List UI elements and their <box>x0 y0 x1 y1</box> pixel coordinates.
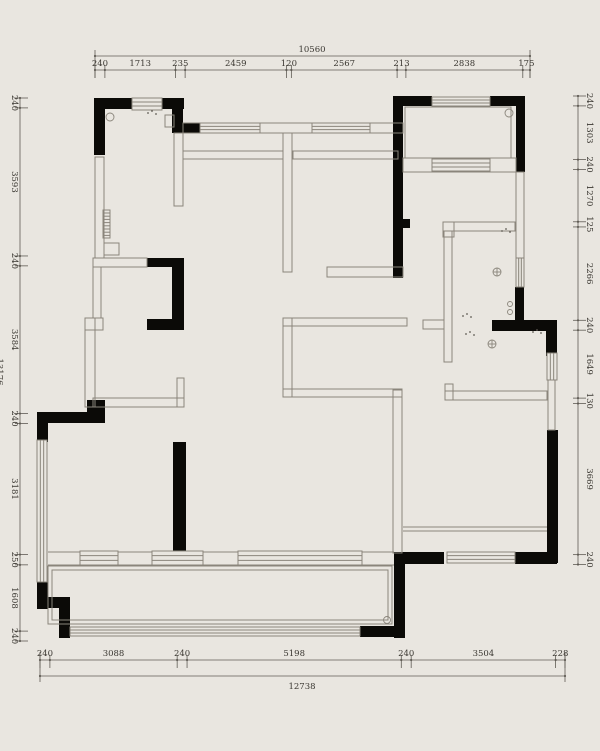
thin-wall <box>93 258 147 267</box>
windows <box>37 97 557 636</box>
dim-label: 2838 <box>454 59 476 69</box>
window-symbol <box>70 627 360 636</box>
switch-dots-icon <box>465 331 475 336</box>
thin-wall <box>445 391 547 400</box>
window-symbol <box>432 159 490 171</box>
thin-wall <box>548 380 555 430</box>
dim-label: 1303 <box>584 122 594 144</box>
wall-segment <box>147 319 184 330</box>
window-symbol <box>200 123 260 133</box>
thin-wall <box>283 133 292 272</box>
dim-chain: 24013032401270125226624016491303669240 <box>573 93 594 568</box>
thin-wall <box>283 389 402 397</box>
window-symbol <box>238 551 362 565</box>
window-symbol <box>312 123 370 133</box>
thin-wall <box>85 318 95 407</box>
dim-chain: 2401713235245912025672132838175 <box>92 59 535 78</box>
thin-wall <box>93 267 101 318</box>
wall-segment <box>515 287 524 321</box>
dim-label: 2459 <box>225 59 247 69</box>
left-total-dim: 13176 <box>0 358 4 385</box>
interior-walls <box>48 107 555 624</box>
switch-dots-icon <box>462 313 472 318</box>
window-symbol <box>80 551 118 565</box>
dim-label: 240 <box>584 317 594 333</box>
dim-label: 2266 <box>584 263 594 285</box>
window-symbol <box>447 552 515 563</box>
wall-segment <box>394 553 405 638</box>
dim-label: 240 <box>37 649 53 659</box>
dim-label: 3504 <box>473 649 495 659</box>
switch-dots-icon <box>147 110 157 115</box>
wall-segment <box>175 123 203 133</box>
balcony-outline <box>52 570 388 620</box>
dim-label: 235 <box>172 59 188 69</box>
dim-label: 240 <box>398 649 414 659</box>
dim-label: 120 <box>281 59 297 69</box>
floorplan-canvas: 10560 12738 13176 2401713235245912025672… <box>0 0 600 751</box>
dim-label: 3181 <box>9 478 19 500</box>
thin-wall <box>93 398 184 407</box>
dim-label: 240 <box>584 551 594 567</box>
dim-label: 240 <box>174 649 190 659</box>
window-symbol <box>516 258 524 287</box>
bottom-total-dim: 12738 <box>288 682 315 692</box>
thin-wall <box>445 384 453 400</box>
thin-wall <box>283 318 407 326</box>
closet-line <box>293 151 398 159</box>
thin-wall <box>444 231 452 362</box>
thin-wall <box>423 320 444 329</box>
thin-wall <box>327 267 403 277</box>
thin-wall <box>95 157 104 258</box>
dim-label: 1270 <box>584 185 594 207</box>
dim-label: 175 <box>518 59 534 69</box>
dim-label: 240 <box>9 628 19 644</box>
thin-wall <box>516 172 524 258</box>
dim-label: 3593 <box>9 171 19 193</box>
window-symbol <box>132 98 162 110</box>
circle-fixture-icon <box>508 302 513 307</box>
dim-label: 228 <box>552 649 568 659</box>
thin-wall <box>85 318 103 330</box>
dim-label: 250 <box>9 552 19 568</box>
drain-icon <box>493 268 501 276</box>
circle-fixture-icon <box>508 310 513 315</box>
circle-fixture-icon <box>106 113 114 121</box>
dim-label: 130 <box>584 393 594 409</box>
dim-label: 213 <box>393 59 409 69</box>
wall-segment <box>173 442 186 564</box>
dim-label: 240 <box>584 156 594 172</box>
dim-chain: 2403593240358424031812501608240 <box>9 95 28 644</box>
window-symbol <box>547 353 557 380</box>
dim-label: 240 <box>9 95 19 111</box>
dim-label: 125 <box>584 216 594 232</box>
circle-fixture-icon <box>505 109 513 117</box>
wall-segment <box>37 597 70 608</box>
dim-label: 1649 <box>584 353 594 375</box>
dim-label: 3669 <box>584 468 594 490</box>
dim-label: 240 <box>584 93 594 109</box>
balcony-outline <box>48 566 392 624</box>
window-symbol <box>37 440 47 582</box>
dim-label: 5198 <box>283 649 305 659</box>
dim-label: 1608 <box>9 587 19 609</box>
wall-segment <box>94 98 105 155</box>
dim-label: 240 <box>9 410 19 426</box>
fixture-rect <box>104 243 119 255</box>
dim-label: 3088 <box>103 649 125 659</box>
floor-plan-svg: 10560 12738 13176 2401713235245912025672… <box>0 0 600 751</box>
dim-label: 240 <box>92 59 108 69</box>
dim-label: 2567 <box>333 59 355 69</box>
wall-segment <box>546 330 557 356</box>
dim-label: 1713 <box>129 59 151 69</box>
dim-label: 3584 <box>9 329 19 351</box>
wall-segment <box>403 219 410 228</box>
wall-segment <box>492 320 557 331</box>
thin-wall <box>393 390 402 553</box>
wall-segment <box>516 96 525 172</box>
wall-segment <box>547 430 558 563</box>
dimension-chains: 10560 12738 13176 2401713235245912025672… <box>0 45 594 692</box>
wall-segment <box>394 552 444 564</box>
thin-wall <box>177 378 184 407</box>
thin-wall <box>174 133 183 206</box>
top-total-dim: 10560 <box>298 45 325 55</box>
wall-segment <box>37 412 48 442</box>
dim-chain: 240308824051982403504228 <box>37 649 569 668</box>
dim-label: 240 <box>9 253 19 269</box>
thin-wall <box>283 318 292 397</box>
window-symbol <box>432 97 490 106</box>
fixtures <box>103 109 542 624</box>
drain-icon <box>488 340 496 348</box>
closet-line <box>183 151 283 159</box>
wall-segment <box>59 607 70 638</box>
bay-outline <box>405 107 511 158</box>
window-symbol <box>152 551 203 565</box>
